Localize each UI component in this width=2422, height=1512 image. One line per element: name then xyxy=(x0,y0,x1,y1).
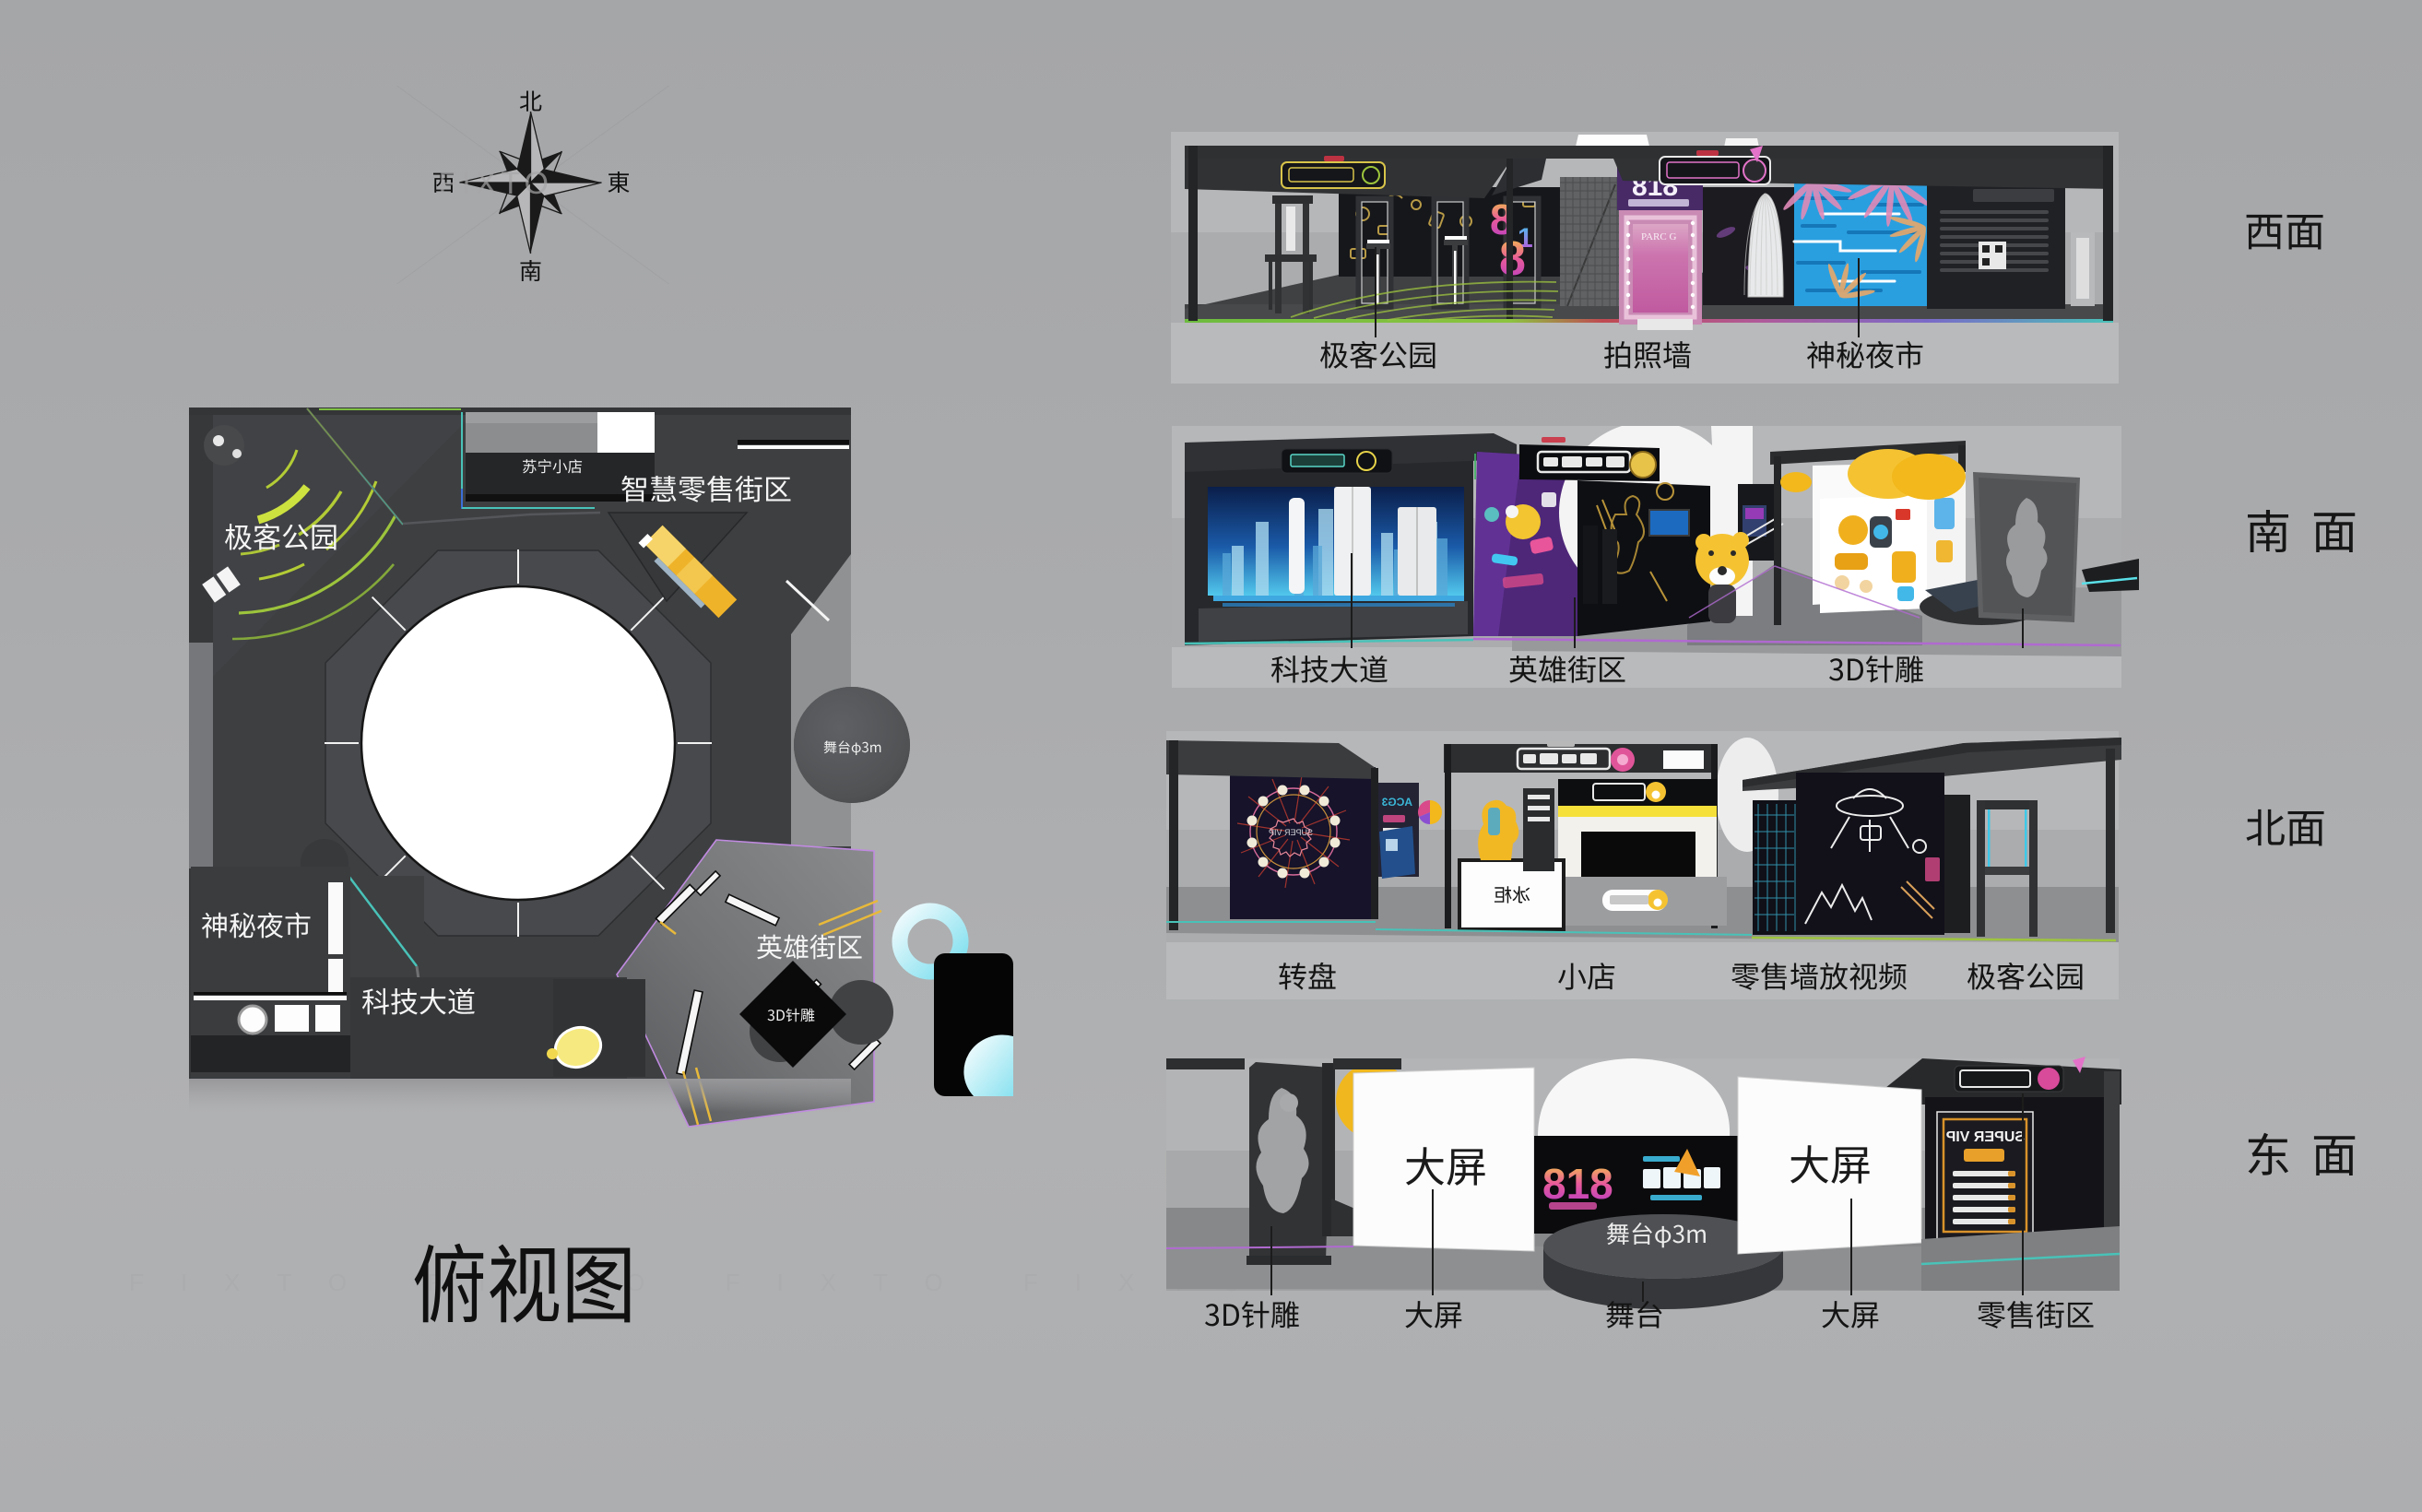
svg-text:SUPER VIP: SUPER VIP xyxy=(1269,828,1313,837)
svg-text:FIXTO FIXTO FIXTO FIXTO: FIXTO FIXTO FIXTO FIXTO xyxy=(129,1269,1278,1296)
svg-text:FIXTO: FIXTO xyxy=(439,166,554,201)
svg-text:PARC G: PARC G xyxy=(1641,231,1676,242)
svg-text:818: 818 xyxy=(1542,1160,1613,1208)
svg-text:SUPER VIP: SUPER VIP xyxy=(1945,1129,2025,1145)
svg-text:ACG3: ACG3 xyxy=(1381,796,1412,809)
